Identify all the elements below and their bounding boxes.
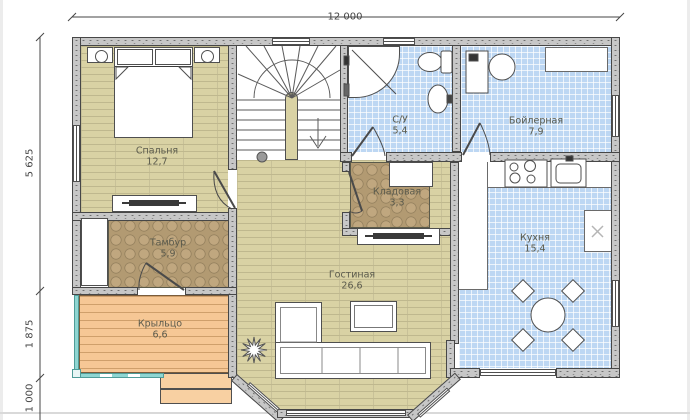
wall-bathroom-boiler [452,45,461,152]
dimension-left-lower: 1 000 [25,384,36,413]
room-label-kitchen: Кухня 15,4 [520,233,550,256]
window-north-bathroom [383,38,415,45]
pillow-left [117,49,153,65]
living-tv-line [365,235,432,237]
blanket-edge [115,66,192,67]
wall-bedroom-east [228,45,237,170]
window-north-stairs [272,38,310,45]
wall-kitchen-south-b [556,368,620,378]
dimension-left-upper: 5 625 [25,149,36,178]
porch-railing-left [74,295,79,378]
room-label-living: Гостиная 26,6 [329,270,375,293]
kitchen-counter-left [459,162,488,290]
window-edge-left [0,0,3,420]
room-label-porch: Крыльцо 6,6 [138,319,182,342]
railing-gap [100,374,112,377]
wall-south-of-boiler [490,152,620,162]
porch-step-1 [160,373,232,389]
window-bedroom-west [73,125,80,182]
wall-living-kitchen [450,162,459,344]
boiler-counter [545,47,608,72]
pillow-right [155,49,191,65]
room-area: 3,3 [373,198,421,209]
room-label-bathroom: С/У 5,4 [392,115,408,138]
storage-closet [389,162,433,187]
wall-south-of-bathroom-a [340,152,352,162]
room-area: 6,6 [138,330,182,341]
lamp-right [201,50,214,63]
room-name: Бойлерная [509,116,563,127]
kitchen-cabinet-right [584,210,611,252]
room-name: Спальня [136,146,178,157]
bay-window-south [286,410,406,416]
vestibule-wardrobe [81,218,108,286]
room-label-vestibule: Тамбур 5,9 [150,238,186,261]
porch-step-2 [160,389,232,404]
window-kitchen-east [612,280,619,327]
room-label-boiler: Бойлерная 7,9 [509,116,563,139]
room-name: Кладовая [373,187,421,198]
dimension-top-width: 12 000 [324,12,367,23]
floor-plan-canvas: Спальня 12,7 С/У 5,4 Бойлерная 7,9 Кладо… [0,0,690,420]
railing-gap [128,374,140,377]
room-name: Крыльцо [138,319,182,330]
wall-vestibule-south-a [72,287,138,295]
porch-railing-post [72,369,81,378]
sofa-seat [275,342,431,379]
room-name: Тамбур [150,238,186,249]
wall-stairs-bathroom [340,45,348,162]
room-area: 15,4 [520,244,550,255]
bedroom-tv-line [122,202,186,204]
dimension-left-middle: 1 875 [25,320,36,349]
porch-railing-bottom [74,373,164,378]
wall-south-of-bathroom-b [386,152,462,162]
room-name: С/У [392,115,408,126]
coffee-table [350,301,397,332]
room-area: 5,4 [392,126,408,137]
room-label-storage: Кладовая 3,3 [373,187,421,210]
room-label-bedroom: Спальня 12,7 [136,146,178,169]
room-area: 5,9 [150,249,186,260]
room-area: 7,9 [509,127,563,138]
lamp-left [95,50,108,63]
window-boiler-east [612,95,619,137]
room-area: 26,6 [329,281,375,292]
stair-stringer [285,92,298,160]
wall-vestibule-south-b [185,287,237,295]
wall-storage-west-a [342,162,350,172]
room-area: 12,7 [136,157,178,168]
room-name: Гостиная [329,270,375,281]
room-name: Кухня [520,233,550,244]
window-kitchen-south [480,369,556,376]
